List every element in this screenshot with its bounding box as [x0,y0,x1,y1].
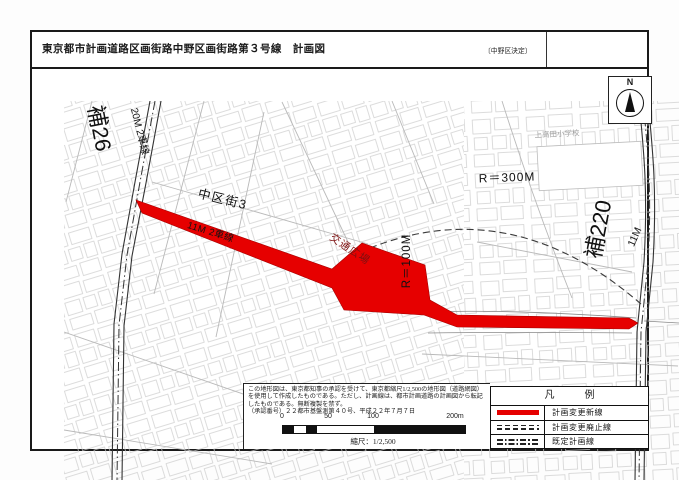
decision-note: 〔中野区決定〕 [484,32,532,67]
legend-symbol-new-line [491,406,545,420]
note-line: を使用して作成したものである。ただし、計画線は、都市計画道路の計画図から転記 [248,393,488,400]
radius-300m-label: R＝300M [478,168,535,187]
title-bar: 東京都市計画道路区画街路中野区画街路第３号線 計画図 〔中野区決定〕 [32,32,647,69]
legend-table: 凡 例 計画変更新線 計画変更廃止線 既定計画線 [490,386,649,449]
north-arrow-box: N [608,76,652,124]
legend-label: 計画変更廃止線 [545,422,612,433]
school-block [537,141,643,190]
scale-caption: 縮尺：1/2,500 [282,436,464,447]
dashdot-line-icon [497,439,539,445]
legend-symbol-fixed-line [491,435,545,449]
scalebar-tick-0: 0 [280,413,284,420]
legend-label: 計画変更新線 [545,407,603,418]
school-label: 上高田小学校 [534,127,580,140]
scalebar-tick-100: 100 [367,413,379,420]
legend-symbol-abolished-line [491,421,545,435]
scalebar-tick-50: 50 [324,413,332,420]
legend-row-new-line: 計画変更新線 [491,406,648,421]
compass-circle [616,89,644,117]
radius-100m-label: R＝100M [398,234,414,289]
legend-header: 凡 例 [491,387,648,406]
dashed-line-icon [497,425,539,431]
north-needle-icon [625,92,635,112]
legend-row-fixed-line: 既定計画線 [491,435,648,449]
source-notes: この地形図は、東京都知事の承認を受けて、東京都縮尺1/2,500の地形図（道路網… [248,386,488,416]
page-title: 東京都市計画道路区画街路中野区画街路第３号線 計画図 [42,32,325,67]
scalebar-tick-200: 200m [446,413,464,420]
legend-row-abolished-line: 計画変更廃止線 [491,421,648,436]
north-label: N [609,77,651,87]
solid-red-line-icon [497,410,539,415]
plan-map-sheet: 東京都市計画道路区画街路中野区画街路第３号線 計画図 〔中野区決定〕 [0,0,679,480]
legend-label: 既定計画線 [545,436,595,447]
scale-bar [282,425,466,434]
source-notes-panel: この地形図は、東京都知事の承認を受けて、東京都縮尺1/2,500の地形図（道路網… [243,383,490,449]
title-divider [546,32,547,67]
